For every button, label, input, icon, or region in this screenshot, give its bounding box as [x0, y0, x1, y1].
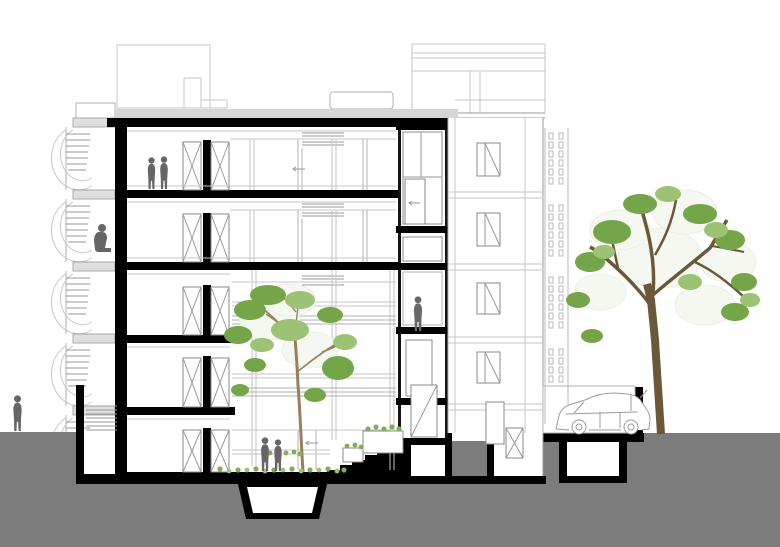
person-couple-courtyard-a [261, 437, 269, 471]
roof-box-outline [201, 100, 227, 108]
door-swing-arrow [293, 167, 305, 171]
shaft-band [396, 327, 450, 334]
parking-bay [543, 386, 650, 434]
shaft-window-mid [403, 237, 442, 261]
screen-holes-s2 [549, 205, 563, 256]
car [556, 390, 650, 434]
right-ground-slab [396, 476, 546, 484]
chimney-outline [184, 78, 201, 108]
floor-slab-1 [115, 407, 235, 415]
ground-door [486, 402, 504, 444]
entry-room [84, 432, 115, 474]
interior-wall [203, 428, 211, 472]
section-drawing [0, 0, 780, 547]
shaft-basement-room [411, 445, 445, 476]
person-couple-upper-b [160, 156, 168, 189]
car-wheel-rear [624, 420, 638, 434]
interior-wall [203, 285, 211, 335]
interior-wall [203, 140, 211, 190]
shaft [396, 123, 450, 445]
floor-5 [127, 131, 396, 190]
person-couple-courtyard-b [274, 439, 281, 471]
floor-4 [127, 202, 396, 262]
shaft-rail-left [398, 123, 401, 445]
floor-slab-2 [115, 335, 235, 343]
shaft-door [405, 179, 425, 224]
interior-wall [203, 356, 211, 407]
courtyard-basement-room [247, 487, 318, 513]
stair-roof-cover [76, 103, 115, 118]
perforated-screen [545, 128, 568, 424]
shaft-band [396, 226, 450, 233]
floor-1 [127, 419, 230, 472]
entry-retaining-wall [76, 385, 84, 484]
cut-wall-left [115, 118, 127, 472]
shaft-band [396, 123, 450, 130]
person-street-left [13, 395, 21, 431]
shaft-band [396, 263, 450, 270]
earth-right-street [643, 433, 780, 484]
right-facade [448, 118, 543, 476]
background-tower [412, 44, 545, 118]
roof-parapet [115, 109, 458, 118]
person-sitting [94, 224, 111, 252]
roof-bulkhead [330, 92, 393, 109]
screen-holes-s1 [549, 133, 563, 184]
earth-bottom [0, 484, 780, 547]
entry-stairs [86, 406, 117, 430]
screen-holes-s4 [549, 349, 563, 382]
entry-room-floor [84, 474, 115, 484]
interior-wall [203, 213, 211, 262]
background-roof-volume [117, 45, 210, 108]
screen-holes-s3 [549, 277, 563, 328]
person-couple-upper-a [148, 157, 155, 189]
car-wheel-front [572, 420, 586, 434]
garage-basement-room [567, 442, 619, 476]
floor-2 [127, 347, 230, 407]
shaft-band [396, 438, 450, 445]
